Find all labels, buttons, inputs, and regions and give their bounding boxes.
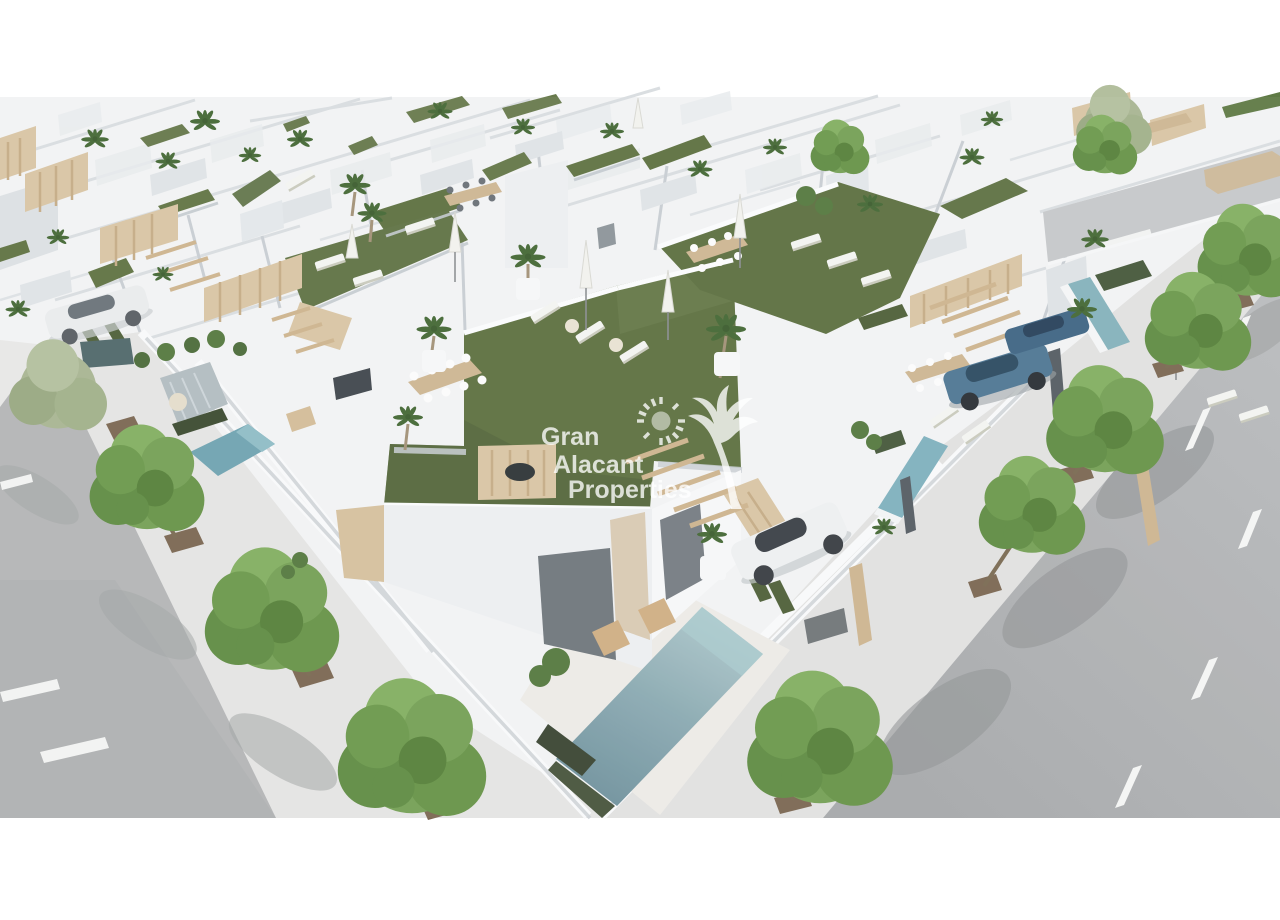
svg-text:Properties: Properties	[568, 476, 692, 504]
svg-text:Alacant: Alacant	[553, 451, 644, 479]
svg-text:Gran: Gran	[541, 423, 599, 451]
